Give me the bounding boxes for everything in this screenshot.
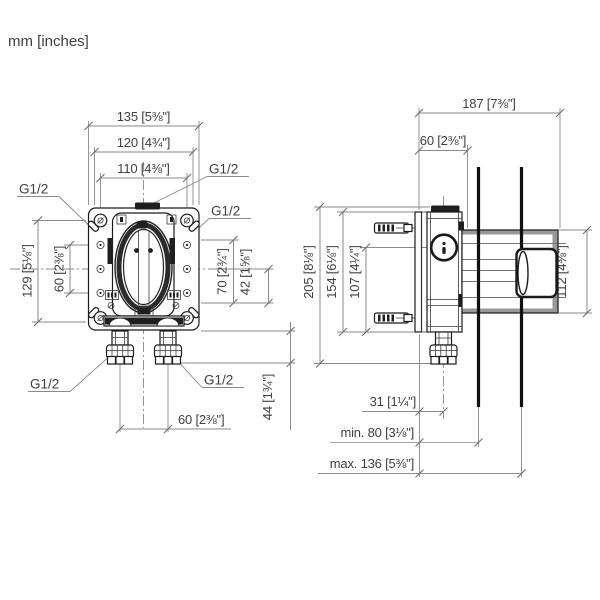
port-label-outlet-left: G1/2 bbox=[30, 377, 59, 392]
port-label-right: G1/2 bbox=[211, 204, 240, 219]
dim-side-hole-spacing: 60 [2⅜"] bbox=[52, 246, 67, 292]
dim-fitting-length: 44 [1¾"] bbox=[260, 374, 275, 420]
units-note: mm [inches] bbox=[8, 33, 89, 50]
trim-block bbox=[517, 249, 557, 297]
dim-overall-width: 135 [5⅜"] bbox=[117, 109, 170, 124]
dim-housing-depth: 60 [2⅜"] bbox=[420, 133, 466, 148]
mounting-bracket-lower bbox=[375, 313, 416, 323]
dim-overall-height: 129 [5⅛"] bbox=[20, 244, 35, 297]
dim-screw-width: 110 [4⅜"] bbox=[117, 161, 169, 176]
dim-right-upper: 70 [2¾"] bbox=[215, 248, 230, 294]
dim-outlet-offset: 31 [1¼"] bbox=[370, 394, 416, 409]
port-label-outlet-right: G1/2 bbox=[204, 373, 233, 388]
installation-drawing: mm [inches] 135 [5⅜"] 120 [4¾"] 110 [4⅜"… bbox=[0, 0, 600, 600]
valve-body-side bbox=[427, 206, 464, 333]
port-label-left: G1/2 bbox=[19, 182, 48, 197]
dim-outlet-spacing: 60 [2⅜"] bbox=[178, 412, 224, 427]
top-port-tab bbox=[135, 203, 160, 210]
oval-gasket bbox=[115, 221, 172, 313]
side-port-left bbox=[108, 238, 114, 264]
dim-lower-height: 107 [4¼"] bbox=[347, 245, 362, 298]
dim-plate-height: 154 [6⅛"] bbox=[324, 245, 339, 298]
valve-housing bbox=[104, 203, 184, 327]
dim-mounting-width: 120 [4¾"] bbox=[117, 135, 170, 150]
port-label-top: G1/2 bbox=[209, 162, 238, 177]
dim-overall-depth: 187 [7⅜"] bbox=[462, 96, 515, 111]
bottom-flange bbox=[104, 316, 184, 326]
mounting-bracket-upper bbox=[375, 223, 416, 233]
dim-right-lower: 42 [1⅝"] bbox=[238, 249, 253, 295]
dim-overall-height-side: 205 [8⅛"] bbox=[301, 245, 316, 298]
dim-wall-depth-max: max. 136 [5⅜"] bbox=[330, 456, 414, 471]
dim-wall-depth-min: min. 80 [3⅛"] bbox=[340, 425, 414, 440]
